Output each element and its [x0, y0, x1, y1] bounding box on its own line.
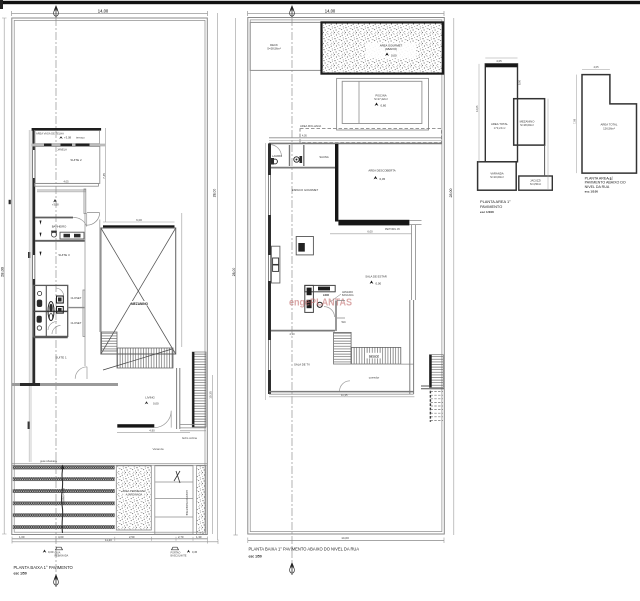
- svg-text:CLOSET: CLOSET: [71, 296, 82, 300]
- svg-text:7,45: 7,45: [102, 173, 106, 179]
- svg-text:S=10,00m²: S=10,00m²: [490, 175, 504, 179]
- svg-text:0,00: 0,00: [153, 401, 159, 405]
- svg-text:esc 1/50: esc 1/50: [14, 572, 27, 576]
- svg-text:AREA DESCOBERTA: AREA DESCOBERTA: [368, 169, 395, 173]
- svg-text:JACUZZI: JACUZZI: [530, 178, 541, 182]
- svg-text:engePLANTAS: engePLANTAS: [289, 298, 352, 309]
- svg-text:10,35: 10,35: [209, 391, 213, 399]
- svg-text:terraco: terraco: [76, 135, 85, 139]
- svg-text:0,00: 0,00: [391, 53, 397, 57]
- svg-text:6,00: 6,00: [136, 218, 142, 222]
- svg-text:4,90: 4,90: [149, 428, 155, 432]
- svg-text:RAMPA i=20%: RAMPA i=20%: [62, 487, 66, 505]
- svg-text:corredor: corredor: [369, 376, 379, 380]
- svg-text:MEZANINO: MEZANINO: [131, 302, 149, 306]
- svg-text:28,00: 28,00: [0, 266, 4, 277]
- svg-text:BASCULANTE: BASCULANTE: [171, 554, 187, 557]
- svg-text:NIVEL DA RUA: NIVEL DA RUA: [585, 185, 610, 189]
- svg-text:12,05: 12,05: [475, 105, 479, 112]
- svg-text:BANHEIRO: BANHEIRO: [52, 225, 67, 229]
- svg-text:AREA VAGA DE TELHA: AREA VAGA DE TELHA: [36, 131, 64, 135]
- svg-text:2,70: 2,70: [178, 535, 184, 539]
- svg-text:11,35: 11,35: [341, 393, 348, 397]
- svg-text:0,00: 0,00: [48, 550, 54, 554]
- svg-text:AREA PERMEAVEL: AREA PERMEAVEL: [122, 489, 146, 493]
- svg-text:1,00: 1,00: [19, 535, 25, 539]
- svg-text:126,56m²: 126,56m²: [603, 126, 615, 130]
- svg-text:7,08: 7,08: [573, 118, 577, 124]
- svg-text:S=28,56m²: S=28,56m²: [267, 47, 281, 51]
- svg-text:fecho cortina: fecho cortina: [182, 436, 197, 440]
- svg-text:S=17,22m²: S=17,22m²: [374, 97, 388, 101]
- svg-text:+3,08: +3,08: [64, 136, 72, 140]
- svg-text:WC: WC: [342, 320, 346, 324]
- svg-text:0,45: 0,45: [380, 177, 386, 181]
- svg-text:SUITE 3: SUITE 3: [58, 253, 70, 257]
- svg-text:SALA DE TV: SALA DE TV: [294, 363, 310, 367]
- svg-text:guia rebaixada: guia rebaixada: [40, 459, 58, 463]
- svg-text:SAUNA: SAUNA: [319, 155, 328, 159]
- svg-text:BANCADA: BANCADA: [342, 294, 354, 297]
- svg-text:SALA DE ESTAR: SALA DE ESTAR: [365, 274, 387, 278]
- svg-text:4,05: 4,05: [63, 180, 69, 184]
- svg-text:8,00: 8,00: [518, 79, 522, 85]
- svg-text:28,00: 28,00: [213, 189, 217, 198]
- svg-text:S=4,50m²: S=4,50m²: [530, 182, 541, 186]
- svg-text:14,00: 14,00: [341, 536, 349, 540]
- svg-text:4,10: 4,10: [289, 332, 295, 336]
- svg-text:PLANTA BAIXA 1° PAVIMENTO ABAI: PLANTA BAIXA 1° PAVIMENTO ABAIXO DO NIVE…: [249, 547, 360, 552]
- svg-text:CLOSET: CLOSET: [71, 321, 82, 325]
- svg-text:4,05: 4,05: [593, 65, 599, 69]
- svg-text:AJARDINADA: AJARDINADA: [126, 493, 143, 497]
- svg-text:esc 1/100: esc 1/100: [480, 210, 494, 214]
- svg-text:2,50: 2,50: [129, 535, 135, 539]
- svg-text:+3,08: +3,08: [52, 203, 59, 207]
- svg-text:28,00: 28,00: [232, 268, 236, 277]
- svg-text:1,30: 1,30: [196, 535, 202, 539]
- svg-text:esc 1/100: esc 1/100: [585, 190, 599, 194]
- svg-text:4,00: 4,00: [58, 535, 64, 539]
- svg-text:0,45: 0,45: [192, 550, 198, 554]
- svg-text:ESPACO GOURMET: ESPACO GOURMET: [292, 188, 319, 192]
- svg-text:28,00: 28,00: [449, 189, 453, 198]
- svg-text:S=18,00m²: S=18,00m²: [520, 123, 534, 127]
- svg-text:0,00: 0,00: [376, 281, 382, 285]
- svg-text:6,00: 6,00: [367, 230, 373, 234]
- svg-text:PEITORIL 45: PEITORIL 45: [385, 228, 400, 231]
- svg-text:AREA MOLHADA: AREA MOLHADA: [300, 124, 321, 128]
- svg-text:Varanda: Varanda: [152, 447, 163, 451]
- svg-text:(ABAIXO): (ABAIXO): [385, 47, 397, 51]
- svg-text:179,24m²: 179,24m²: [494, 126, 506, 130]
- svg-text:4,05: 4,05: [496, 59, 502, 63]
- svg-text:4,05: 4,05: [302, 135, 307, 138]
- svg-text:DESCE: DESCE: [369, 355, 379, 359]
- svg-text:SUITE 2: SUITE 2: [70, 158, 82, 162]
- svg-text:LAVABO: LAVABO: [272, 154, 282, 158]
- svg-text:SUITE 1: SUITE 1: [55, 356, 67, 360]
- svg-text:ACESSO PEDESTRE: ACESSO PEDESTRE: [185, 490, 189, 516]
- svg-text:14,00: 14,00: [325, 9, 336, 14]
- svg-text:0,60: 0,60: [381, 103, 387, 107]
- svg-text:PLANTA BAIXA 1° PAVIMENTO: PLANTA BAIXA 1° PAVIMENTO: [14, 565, 74, 570]
- svg-text:14,00: 14,00: [98, 9, 109, 14]
- svg-text:REBAIXADA: REBAIXADA: [55, 554, 69, 557]
- svg-text:LIVING: LIVING: [145, 396, 155, 400]
- svg-text:11,20: 11,20: [105, 538, 112, 542]
- svg-text:PAVIMENTO: PAVIMENTO: [480, 204, 502, 209]
- svg-text:JANELA: JANELA: [57, 148, 67, 152]
- svg-text:esc 1/50: esc 1/50: [249, 554, 262, 558]
